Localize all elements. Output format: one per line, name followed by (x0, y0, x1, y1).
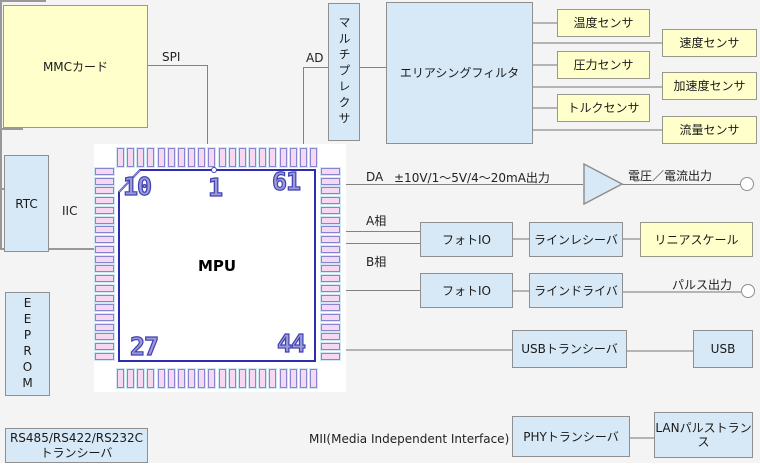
wire-rs485-vertical (0, 130, 2, 188)
mpu-pin (95, 285, 114, 292)
mpu-pin (95, 256, 114, 263)
wire-usb-2 (627, 350, 693, 352)
serial-transceiver-line1: RS485/RS422/RS232C (10, 431, 143, 446)
mpu-pin (95, 353, 114, 360)
pin-number-top-center: 1 (208, 175, 222, 200)
mpu-pin (95, 187, 114, 194)
mpu-pin (208, 148, 215, 167)
box-flow-sensor: 流量センサ (662, 116, 757, 144)
mpu-pin (321, 217, 340, 224)
mpu-pin (137, 148, 144, 167)
box-usb: USB (693, 330, 753, 368)
mpu-pin (321, 353, 340, 360)
mpu-pin (269, 148, 276, 167)
mpu-pin (95, 236, 114, 243)
mpu-pin (280, 148, 287, 167)
mpu-pin (300, 369, 307, 388)
pin-number-top-left: 10 (123, 174, 151, 199)
mpu-pin (95, 246, 114, 253)
mpu-pin (95, 304, 114, 311)
mpu-pin (290, 148, 297, 167)
wire-photo1-receiver (513, 238, 529, 240)
mpu-pin (147, 369, 154, 388)
label-voltage-current-output: 電圧／電流出力 (628, 167, 712, 184)
mpu-pin (178, 369, 185, 388)
mpu-pin (229, 148, 236, 167)
mpu-pin (321, 314, 340, 321)
mpu-pin (321, 197, 340, 204)
mpu-pin (158, 369, 165, 388)
wire-filter-speed (533, 42, 662, 44)
mpu-pin (198, 148, 205, 167)
mpu-pin (95, 207, 114, 214)
mpu-pin (321, 187, 340, 194)
wire-ad-horizontal (303, 67, 329, 68)
box-photo-io-2: フォトIO (420, 273, 513, 308)
mpu-pin (321, 207, 340, 214)
mpu-pin (249, 148, 256, 167)
box-line-driver: ラインドライバ (529, 273, 623, 308)
box-eeprom: EEPROM (5, 292, 50, 396)
label-phase-b: B相 (366, 253, 386, 270)
mpu-pin (280, 369, 287, 388)
mpu-pin (95, 168, 114, 175)
mpu-pins-top (117, 148, 317, 167)
mpu-pin (95, 226, 114, 233)
mpu-pin (95, 314, 114, 321)
wire-iic-vertical (0, 2, 2, 128)
wire-filter-torque (533, 107, 557, 109)
mpu-pin (127, 369, 134, 388)
label-spi: SPI (162, 50, 180, 64)
wire-mii-vertical (0, 190, 2, 248)
box-photo-io-1: フォトIO (420, 222, 513, 257)
mpu-pin (321, 168, 340, 175)
mpu-pin (259, 148, 266, 167)
pin-number-top-right: 61 (272, 169, 300, 194)
label-mii: MII(Media Independent Interface) (309, 432, 509, 446)
wire-phy-lan (630, 437, 654, 439)
wire-photo-io-2 (345, 290, 420, 291)
mpu-pin (321, 285, 340, 292)
box-phy-transceiver: PHYトランシーバ (512, 416, 630, 457)
mpu-pin (95, 265, 114, 272)
label-da: DA (366, 170, 383, 184)
mpu-pin (239, 148, 246, 167)
box-mmc-card: MMCカード (3, 5, 148, 128)
mpu-pin (310, 369, 317, 388)
label-pulse-output: パルス出力 (672, 276, 732, 293)
mpu-pin (321, 304, 340, 311)
mpu-pin (95, 295, 114, 302)
wire-usb-1 (345, 349, 512, 351)
pin-one-marker-icon (211, 167, 217, 173)
mpu-pin (321, 246, 340, 253)
wire-filter-pressure (533, 64, 557, 66)
wire-phase-a (345, 231, 420, 232)
box-multiplexer: マルチプレクサ (328, 3, 360, 141)
wire-photo2-driver (513, 290, 529, 292)
voltage-output-terminal-icon (740, 177, 754, 191)
mpu-pin (168, 369, 175, 388)
mpu-pin (127, 148, 134, 167)
mpu-pin (117, 369, 124, 388)
mpu-pin (321, 343, 340, 350)
mpu-chip: 10 1 61 27 44 MPU (94, 144, 346, 392)
serial-transceiver-line2: トランシーバ (41, 446, 113, 461)
mpu-pins-left (95, 168, 114, 360)
mpu-pin (239, 369, 246, 388)
mpu-pin (95, 324, 114, 331)
label-phase-a: A相 (366, 212, 386, 229)
wire-receiver-scale (623, 238, 640, 240)
mpu-pin (321, 324, 340, 331)
wire-mux-filter (360, 67, 386, 68)
box-line-receiver: ラインレシーバ (529, 222, 623, 257)
mpu-pin (321, 226, 340, 233)
mpu-pins-bottom (117, 369, 317, 388)
mpu-pin (188, 369, 195, 388)
mpu-pin (178, 148, 185, 167)
mpu-pin (321, 178, 340, 185)
box-rtc: RTC (4, 155, 49, 252)
mpu-pin (249, 369, 256, 388)
mpu-pin (269, 369, 276, 388)
mpu-pin (321, 236, 340, 243)
pulse-output-terminal-icon (741, 284, 755, 298)
mpu-pin (95, 343, 114, 350)
box-torque-sensor: トルクセンサ (557, 94, 650, 122)
mpu-pin (321, 275, 340, 282)
wire-iic-horizontal (0, 0, 46, 2)
mpu-pin (95, 178, 114, 185)
mpu-pin (310, 148, 317, 167)
mpu-pin (147, 148, 154, 167)
wire-ad-vertical (303, 67, 304, 148)
box-acceleration-sensor: 加速度センサ (662, 72, 757, 100)
mpu-pin (95, 333, 114, 340)
wire-amp-output (622, 184, 742, 185)
mpu-pin (300, 148, 307, 167)
box-temperature-sensor: 温度センサ (557, 9, 650, 37)
wire-filter-temp (533, 22, 557, 24)
mpu-pin (259, 369, 266, 388)
mpu-pin (198, 369, 205, 388)
mpu-pin (290, 369, 297, 388)
wire-spi-horizontal (148, 65, 207, 66)
box-usb-transceiver: USBトランシーバ (512, 330, 627, 368)
wire-phase-b (345, 243, 420, 244)
mpu-pin (168, 148, 175, 167)
box-linear-scale: リニアスケール (640, 222, 753, 257)
block-diagram: MMCカード マルチプレクサ エリアシングフィルタ 温度センサ 速度センサ 圧力… (0, 0, 760, 468)
mpu-pin (321, 265, 340, 272)
mpu-pin (219, 369, 226, 388)
bottom-margin (0, 463, 760, 468)
box-aliasing-filter: エリアシングフィルタ (386, 2, 533, 144)
wire-filter-accel (533, 86, 662, 88)
mpu-pin (208, 369, 215, 388)
mpu-pin (229, 369, 236, 388)
box-lan-pulse-transformer: LANパルストランス (654, 412, 753, 458)
box-pressure-sensor: 圧力センサ (557, 51, 650, 79)
mpu-pin (188, 148, 195, 167)
mpu-pin (95, 275, 114, 282)
mpu-pin (95, 197, 114, 204)
mpu-pin (321, 295, 340, 302)
mpu-label: MPU (117, 257, 317, 275)
box-serial-transceiver: RS485/RS422/RS232C トランシーバ (5, 428, 148, 463)
mpu-pin (95, 217, 114, 224)
pin-number-bottom-left: 27 (130, 334, 158, 359)
pin-number-bottom-right: 44 (277, 331, 305, 356)
box-speed-sensor: 速度センサ (662, 29, 757, 57)
mpu-pin (321, 333, 340, 340)
mpu-pin (219, 148, 226, 167)
label-da-range: ±10V/1～5V/4～20mA出力 (394, 169, 550, 186)
mpu-pin (158, 148, 165, 167)
wire-eeprom (0, 128, 23, 130)
label-iic: IIC (62, 204, 77, 218)
mpu-pin (137, 369, 144, 388)
wire-filter-flow (533, 129, 662, 131)
wire-spi-vertical (207, 65, 208, 148)
label-ad: AD (306, 51, 323, 65)
amplifier-triangle-icon (583, 163, 624, 205)
mpu-pin (117, 148, 124, 167)
mpu-pins-right (321, 168, 340, 360)
mpu-pin (321, 256, 340, 263)
